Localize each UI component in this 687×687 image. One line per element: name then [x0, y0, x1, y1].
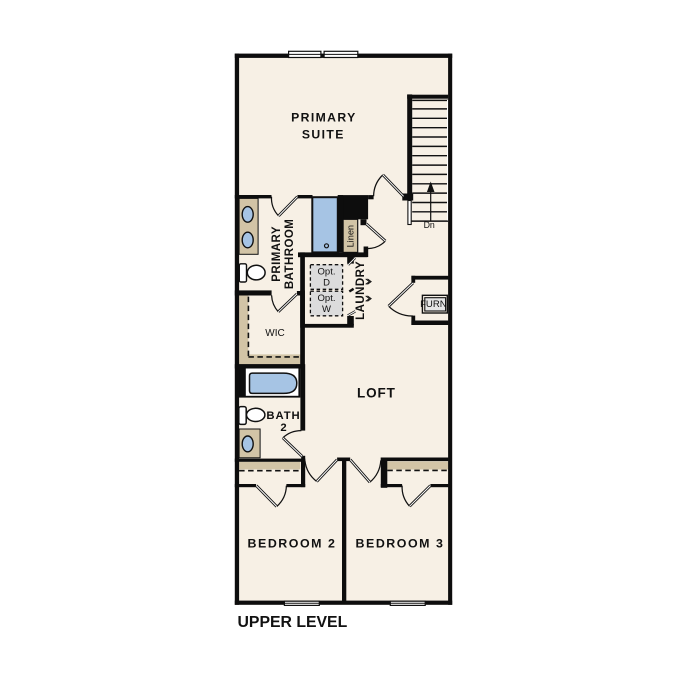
svg-text:Dn: Dn [424, 220, 435, 230]
svg-text:PRIMARY: PRIMARY [271, 226, 283, 282]
svg-text:LAUNDRY: LAUNDRY [355, 261, 367, 320]
svg-text:UPPER LEVEL: UPPER LEVEL [238, 614, 348, 631]
svg-text:BATHROOM: BATHROOM [284, 219, 296, 289]
svg-text:WIC: WIC [265, 328, 284, 339]
svg-text:Opt.: Opt. [318, 266, 336, 277]
svg-text:PRIMARY: PRIMARY [291, 111, 357, 125]
svg-text:BEDROOM 3: BEDROOM 3 [356, 536, 445, 550]
svg-text:D: D [323, 277, 330, 288]
svg-text:SUITE: SUITE [302, 127, 345, 141]
svg-text:W: W [322, 304, 331, 315]
svg-text:Opt.: Opt. [318, 293, 336, 304]
svg-text:FURN: FURN [420, 299, 447, 310]
svg-text:BEDROOM 2: BEDROOM 2 [248, 536, 337, 550]
svg-text:Linen: Linen [345, 225, 355, 247]
svg-text:BATH: BATH [266, 410, 300, 422]
svg-text:2: 2 [280, 422, 286, 434]
svg-text:LOFT: LOFT [357, 385, 396, 400]
